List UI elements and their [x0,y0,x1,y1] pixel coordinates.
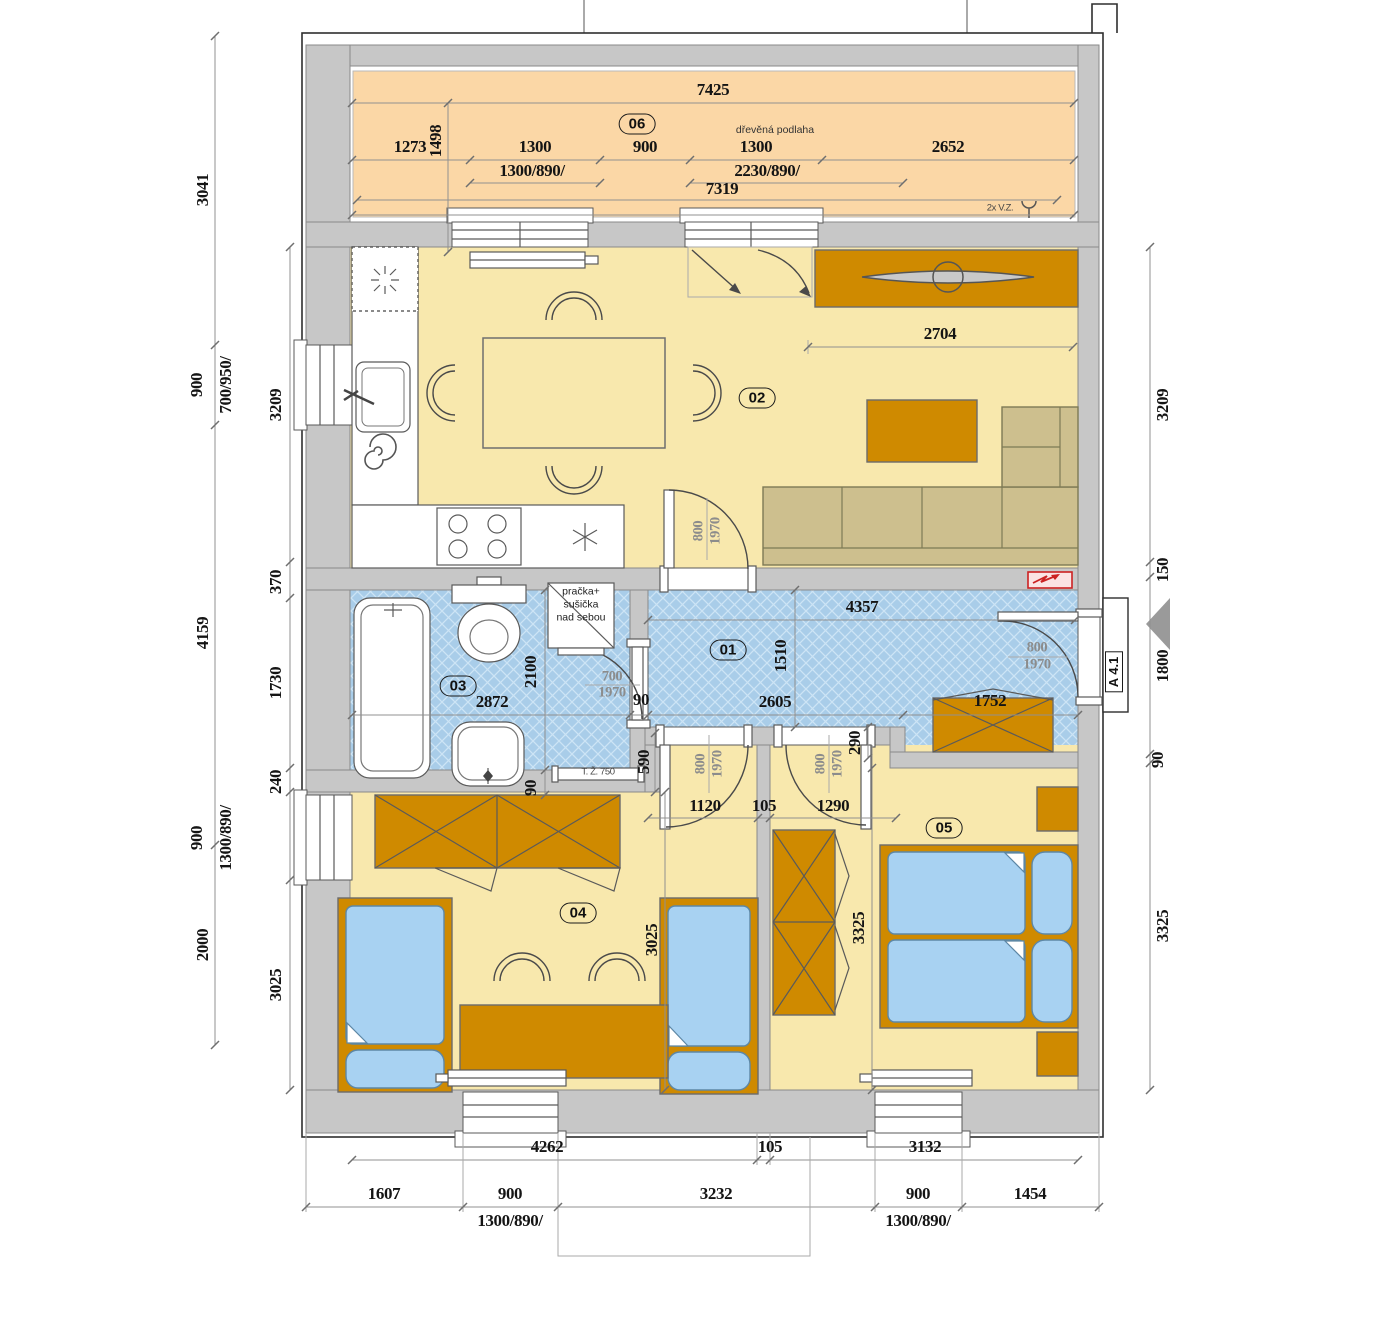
window-sill-bed04-left [294,790,307,885]
dim-label: 2605 [759,692,791,712]
dim-label: 900 [187,373,207,397]
window-kitchen [306,345,352,425]
dim-label: 3325 [849,912,869,944]
tap-label: 2x V.Z. [987,203,1013,214]
door-jamb [656,725,664,747]
door-size-label: 700 [602,669,623,686]
towel-rail-label: T. Ž. 750 [581,767,614,778]
dim-label: 3041 [193,174,213,206]
dim-label: 105 [752,796,776,816]
dim-label: 150 [1153,558,1173,582]
floor-plan-canvas: 7425 1273 1498 1300 900 1300 2652 1300/8… [0,0,1380,1320]
dim-label: 1300 [519,137,551,157]
dim-label: 1607 [368,1184,400,1204]
dim-label: 1300 [740,137,772,157]
radiator-valve [436,1074,448,1082]
mattress [888,852,1025,934]
dim-label: 4262 [531,1137,563,1157]
window-bedroom04-left [306,795,352,880]
dim-label: 90 [633,690,649,710]
room-number-03: 03 [440,676,477,697]
dim-label: 290 [845,731,865,755]
door-jamb [774,725,782,747]
dim-label: 3132 [909,1137,941,1157]
nightstand [1037,787,1078,831]
dim-label: 900 [906,1184,930,1204]
dim-label: 2230/890/ [734,161,799,181]
dim-label: 1498 [426,125,446,157]
dim-label: 2704 [924,324,956,344]
dim-label: 90 [1148,752,1168,768]
radiator-valve [585,256,598,264]
door-size-label: 800 [1027,640,1048,657]
dim-label: 3232 [700,1184,732,1204]
dim-label: 1454 [1014,1184,1046,1204]
dim-label: 900 [498,1184,522,1204]
room-number-04: 04 [560,903,597,924]
toilet-bowl [458,604,520,662]
door-jamb [627,639,650,647]
dim-label: 7319 [706,179,738,199]
door-size-label: 1970 [708,517,725,544]
toilet-flush [477,577,501,585]
door-leaf-living [664,490,674,568]
door-size-label: 800 [693,754,710,775]
dim-label: 1800 [1153,650,1173,682]
door-size-label: 1970 [598,685,625,702]
mattress [888,940,1025,1022]
dim-label: 2872 [476,692,508,712]
dim-label: 590 [634,750,654,774]
toilet-tank [452,585,526,603]
dim-label: 1730 [266,667,286,699]
pillow [1032,852,1072,934]
dim-label: 105 [758,1137,782,1157]
dim-label: 2652 [932,137,964,157]
stove [437,508,521,565]
door-jamb [744,725,752,747]
window-sill-kitchen [294,340,307,430]
door-size-label: 1970 [710,750,727,777]
dim-label: 2100 [521,656,541,688]
dim-label: 1273 [394,137,426,157]
door-size-label: 800 [691,521,708,542]
dim-label: 3025 [642,924,662,956]
dim-label: 7425 [697,80,729,100]
dim-label: 4357 [846,597,878,617]
dim-label: 3025 [266,969,286,1001]
door-size-label: 1970 [1023,657,1050,674]
dim-label: 900 [633,137,657,157]
dim-label: 1120 [689,796,720,816]
dining-table [483,338,665,448]
room-number-01: 01 [710,640,747,661]
dim-label: 3325 [1153,910,1173,942]
desk [460,1005,668,1078]
dim-label: 900 [187,826,207,850]
door-size-label: 1970 [830,750,847,777]
door-jamb [748,566,756,592]
door-jamb [627,720,650,728]
dim-label: 2000 [193,929,213,961]
door-jamb [1076,697,1102,705]
mattress [668,906,750,1046]
room-number-05: 05 [926,818,963,839]
dim-label: 1510 [771,640,791,672]
pillow [1032,940,1072,1022]
dim-label: 90 [521,780,541,796]
bathtub [354,598,430,778]
door-jamb [1076,609,1102,617]
washer-label: nad sebou [546,612,616,625]
door-leaf-bedroom05 [861,745,871,829]
sofa [763,487,1078,565]
entrance-reference: A 4.1 [1105,652,1123,693]
window-bedroom04-bottom [463,1092,558,1133]
door-jamb [660,566,668,592]
mattress [346,906,444,1044]
dim-label: 4159 [193,617,213,649]
dim-label: 1752 [974,691,1006,711]
nightstand [1037,1032,1078,1076]
coffee-table [867,400,977,462]
kitchen-upper-cabinet [352,247,418,311]
room-number-02: 02 [739,388,776,409]
dim-label: 1300/890/ [216,805,236,870]
dim-label: 1300/890/ [885,1211,950,1231]
dim-label: 3209 [1153,389,1173,421]
dim-label: 1300/890/ [477,1211,542,1231]
pillow [668,1052,750,1090]
dim-label: 1290 [817,796,849,816]
dim-label: 1300/890/ [499,161,564,181]
electrical-panel-icon [1028,572,1072,588]
floor-material-label: dřevěná podlaha [736,124,814,136]
window-bedroom05-bottom [875,1092,962,1133]
entrance-door-opening [1078,616,1100,698]
pillow [346,1050,444,1088]
washer-label: pračka+ [546,586,616,599]
door-size-label: 800 [813,754,830,775]
dim-label: 370 [266,570,286,594]
radiator-valve [860,1074,872,1082]
room-number-06: 06 [619,114,656,135]
dim-label: 240 [266,770,286,794]
dim-label: 3209 [266,389,286,421]
washer-label: sušička [546,599,616,612]
kitchen-sink [356,362,410,432]
dim-label: 700/950/ [216,356,236,413]
